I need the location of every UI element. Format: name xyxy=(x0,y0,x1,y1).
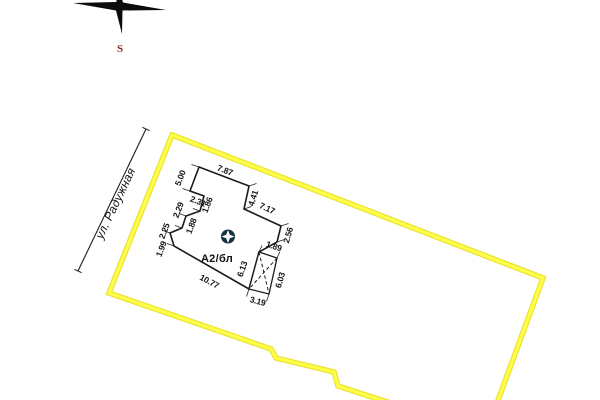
dim-left-upper: 5.00 xyxy=(173,168,188,187)
dim-left-lower: 1.99 xyxy=(154,239,169,258)
compass-star xyxy=(73,0,166,34)
parcel-boundary xyxy=(109,135,543,400)
building-name-label: А2/бл xyxy=(201,253,233,265)
parcel-boundary-line xyxy=(109,135,543,400)
parcel-boundary-edge xyxy=(109,135,543,400)
compass-south-label: S xyxy=(117,43,123,55)
plan-drawing: S ул. Радужная xyxy=(0,0,600,400)
dim-annex-right: 6.03 xyxy=(273,271,287,289)
dim-right-diagonal: 7.17 xyxy=(258,200,277,216)
dim-left-step2: 2.25 xyxy=(157,221,172,240)
dim-right-side: 2.56 xyxy=(281,226,295,244)
building: А2/бл 7.87 5.00 2.31 1.86 4.41 7.17 2.29… xyxy=(154,163,296,308)
dim-left-step1: 2.29 xyxy=(171,200,186,219)
survey-marker-icon xyxy=(221,230,235,244)
street: ул. Радужная xyxy=(74,127,149,272)
compass-rose-icon: S xyxy=(73,0,166,55)
site-plan: S ул. Радужная xyxy=(0,0,600,400)
dim-annex-bottom: 3.19 xyxy=(249,294,267,308)
dim-main-bottom: 10.77 xyxy=(198,272,221,291)
